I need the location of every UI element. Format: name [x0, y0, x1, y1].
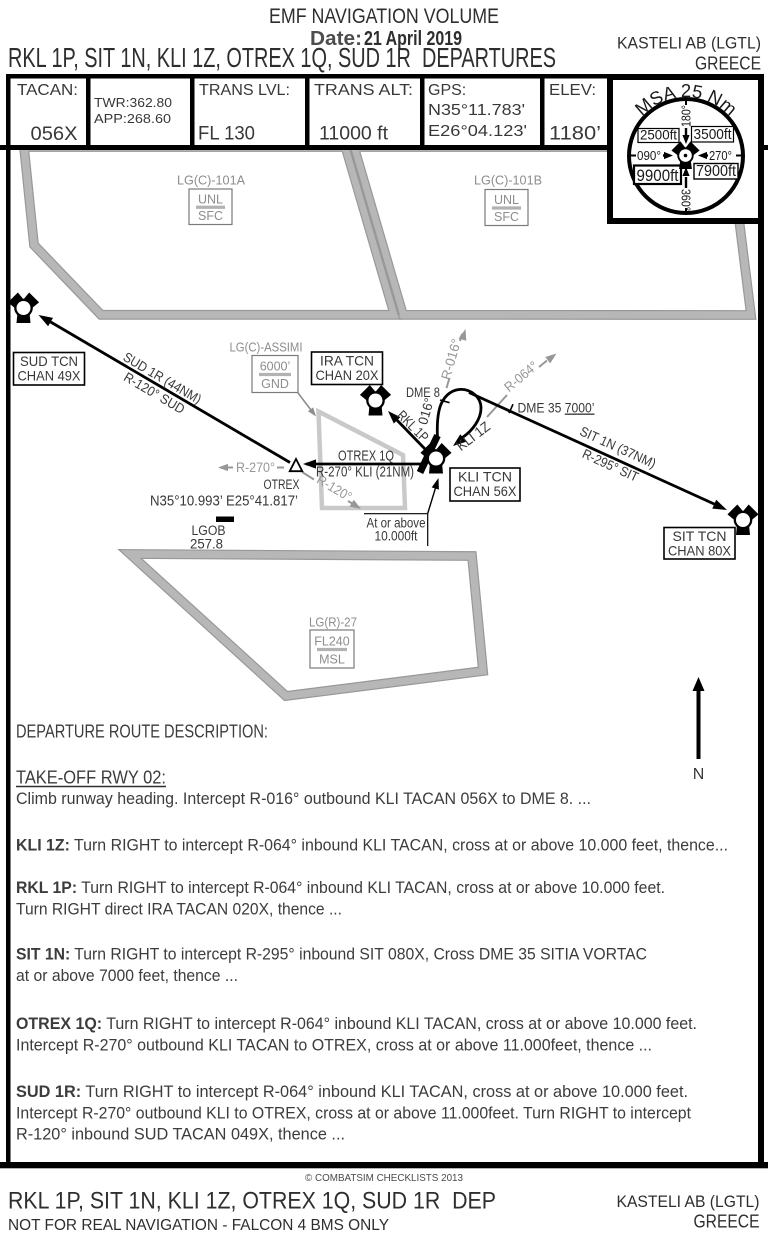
- svg-text:090°: 090°: [637, 148, 661, 163]
- svg-text:CHAN 56X: CHAN 56X: [454, 483, 518, 499]
- svg-text:ELEV:: ELEV:: [549, 82, 596, 99]
- svg-text:SUD 1R: Turn RIGHT to intercep: SUD 1R: Turn RIGHT to intercept R-064° i…: [16, 1082, 688, 1101]
- svg-text:TAKE-OFF RWY 02:: TAKE-OFF RWY 02:: [16, 768, 166, 788]
- svg-text:R-270°: R-270°: [236, 460, 275, 475]
- svg-text:DME 35 7000’: DME 35 7000’: [518, 401, 595, 416]
- svg-text:OTREX 1Q: OTREX 1Q: [338, 449, 394, 465]
- svg-text:2500ft: 2500ft: [640, 127, 677, 143]
- svg-text:TWR:362.80: TWR:362.80: [94, 95, 172, 110]
- svg-text:1180’: 1180’: [549, 123, 601, 145]
- svg-text:SFC: SFC: [198, 209, 223, 223]
- svg-text:at or above 7000 feet, thence: at or above 7000 feet, thence ...: [16, 966, 238, 985]
- svg-text:E26°04.123': E26°04.123': [428, 123, 527, 140]
- svg-text:SIT 1N: Turn RIGHT to intercep: SIT 1N: Turn RIGHT to intercept R-295° i…: [16, 945, 647, 964]
- svg-text:LG(C)-101B: LG(C)-101B: [474, 173, 542, 188]
- svg-text:11000 ft: 11000 ft: [319, 123, 389, 145]
- svg-text:GPS:: GPS:: [428, 82, 466, 99]
- svg-text:RKL 1P: Turn RIGHT to intercep: RKL 1P: Turn RIGHT to intercept R-064° i…: [16, 878, 665, 897]
- svg-text:TACAN:: TACAN:: [17, 82, 78, 99]
- svg-text:DEPARTURE ROUTE DESCRIPTION:: DEPARTURE ROUTE DESCRIPTION:: [16, 721, 268, 742]
- svg-text:7900ft: 7900ft: [696, 163, 737, 180]
- svg-text:CHAN 80X: CHAN 80X: [668, 543, 732, 559]
- svg-text:TRANS LVL:: TRANS LVL:: [199, 82, 290, 99]
- svg-text:LG(C)-101A: LG(C)-101A: [177, 173, 245, 188]
- svg-text:N: N: [693, 766, 705, 783]
- svg-text:UNL: UNL: [494, 193, 519, 207]
- svg-text:10.000ft: 10.000ft: [375, 528, 418, 544]
- svg-text:KLI 1Z: Turn RIGHT to intercep: KLI 1Z: Turn RIGHT to intercept R-064° i…: [16, 836, 728, 855]
- svg-text:RKL 1P, SIT 1N, KLI 1Z, OTREX: RKL 1P, SIT 1N, KLI 1Z, OTREX 1Q, SUD 1R…: [8, 1188, 496, 1215]
- svg-text:6000’: 6000’: [260, 360, 291, 374]
- svg-text:OTREX 1Q: Turn RIGHT to interc: OTREX 1Q: Turn RIGHT to intercept R-064°…: [16, 1014, 697, 1033]
- svg-text:RKL 1P, SIT 1N, KLI 1Z, OTREX: RKL 1P, SIT 1N, KLI 1Z, OTREX 1Q, SUD 1R…: [8, 42, 556, 73]
- svg-text:3500ft: 3500ft: [694, 126, 733, 143]
- svg-text:180°: 180°: [680, 105, 694, 127]
- svg-text:UNL: UNL: [198, 192, 223, 206]
- svg-text:Intercept R-270° outbound KLI: Intercept R-270° outbound KLI TACAN to O…: [16, 1036, 652, 1055]
- svg-text:OTREX: OTREX: [264, 477, 300, 492]
- svg-text:KASTELI AB (LGTL): KASTELI AB (LGTL): [617, 34, 761, 53]
- svg-text:LG(C)-ASSIMI: LG(C)-ASSIMI: [230, 340, 303, 355]
- svg-text:N35°11.783': N35°11.783': [428, 102, 525, 119]
- svg-text:R-270° KLI (21NM): R-270° KLI (21NM): [316, 465, 414, 481]
- svg-text:R-120° inbound SUD TACAN 049X,: R-120° inbound SUD TACAN 049X, thence ..…: [16, 1125, 345, 1144]
- svg-text:GREECE: GREECE: [695, 53, 761, 74]
- svg-text:GND: GND: [261, 377, 289, 391]
- svg-text:270°: 270°: [709, 148, 732, 163]
- svg-text:KASTELI AB (LGTL): KASTELI AB (LGTL): [617, 1192, 760, 1211]
- svg-text:LG(R)-27: LG(R)-27: [309, 615, 357, 630]
- svg-text:Turn RIGHT direct IRA TACAN 02: Turn RIGHT direct IRA TACAN 020X, thence…: [16, 900, 342, 919]
- svg-text:Climb runway heading. Intercep: Climb runway heading. Intercept R-016° o…: [16, 789, 591, 808]
- svg-text:MSL: MSL: [319, 653, 345, 667]
- svg-text:N35°10.993’ E25°41.817’: N35°10.993’ E25°41.817’: [150, 494, 298, 510]
- svg-text:056X: 056X: [31, 123, 78, 145]
- svg-text:CHAN 49X: CHAN 49X: [18, 368, 82, 384]
- svg-text:FL240: FL240: [314, 635, 349, 649]
- svg-text:NOT FOR REAL NAVIGATION - FALC: NOT FOR REAL NAVIGATION - FALCON 4 BMS O…: [8, 1217, 389, 1234]
- svg-text:257.8: 257.8: [190, 537, 223, 552]
- svg-text:DME 8: DME 8: [406, 385, 440, 400]
- svg-text:EMF NAVIGATION VOLUME: EMF NAVIGATION VOLUME: [269, 4, 499, 28]
- svg-text:SFC: SFC: [494, 210, 519, 224]
- svg-text:360°: 360°: [679, 189, 693, 211]
- svg-text:9900ft: 9900ft: [637, 167, 679, 185]
- svg-text:© COMBATSIM CHECKLISTS 2013: © COMBATSIM CHECKLISTS 2013: [305, 1172, 463, 1184]
- svg-text:TRANS ALT:: TRANS ALT:: [314, 82, 413, 99]
- svg-text:GREECE: GREECE: [694, 1211, 760, 1232]
- svg-text:CHAN 20X: CHAN 20X: [316, 367, 380, 383]
- svg-text:FL 130: FL 130: [198, 123, 255, 145]
- svg-text:Intercept R-270° outbound KLI: Intercept R-270° outbound KLI to OTREX, …: [16, 1104, 691, 1123]
- svg-text:APP:268.60: APP:268.60: [94, 111, 171, 126]
